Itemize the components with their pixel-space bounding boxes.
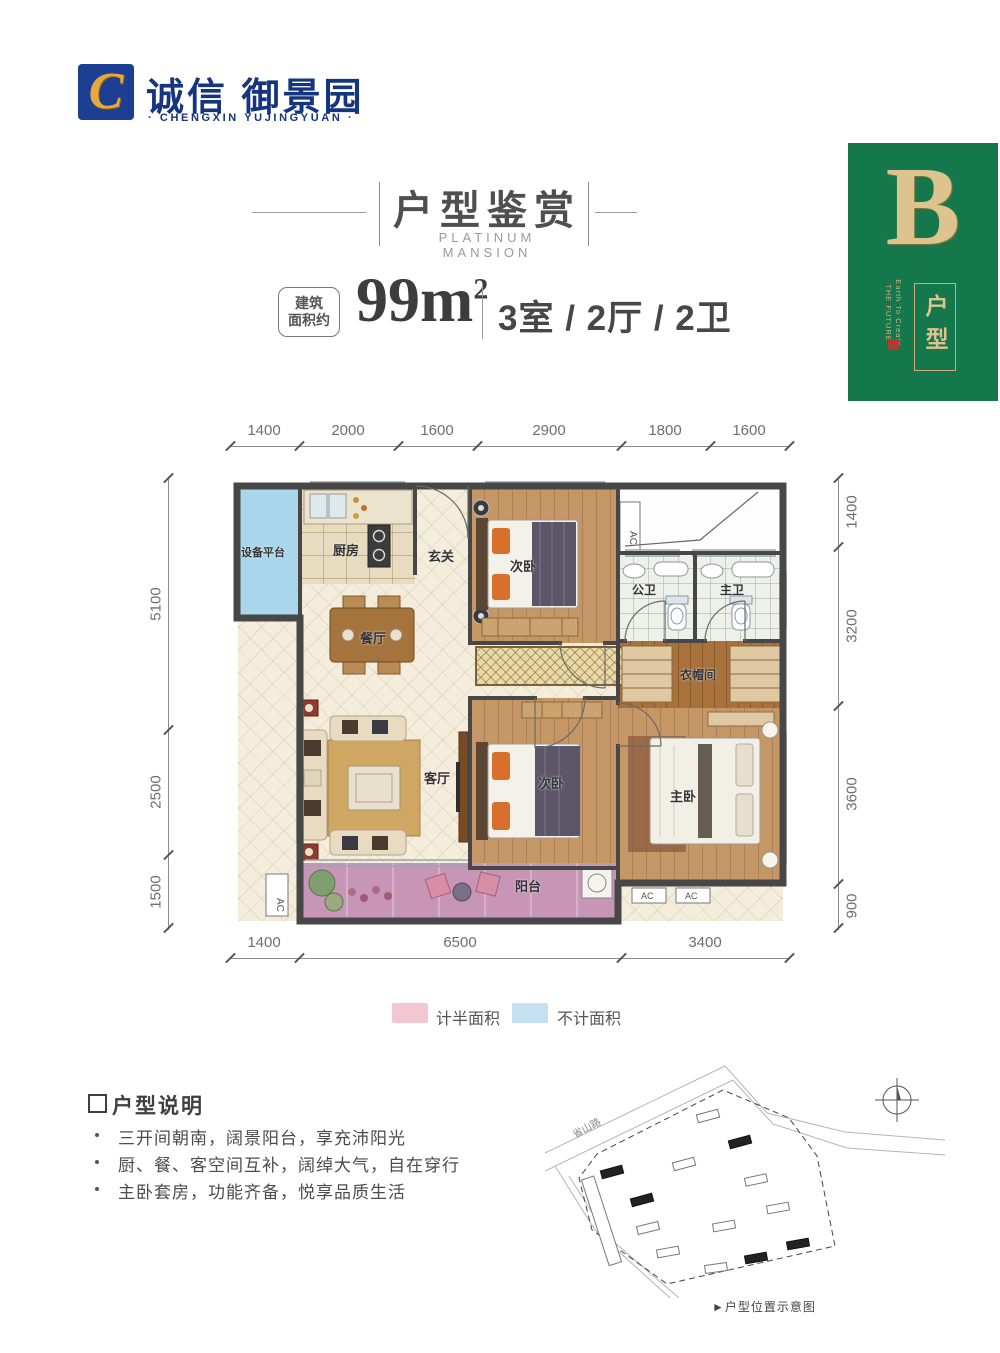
- logo-letter: C: [89, 66, 124, 118]
- unit-type-tag: 户型: [914, 283, 956, 371]
- dim-label: 1400: [844, 495, 861, 528]
- label-cloakroom: 衣帽间: [680, 666, 716, 683]
- label-bath-master: 主卫: [720, 581, 744, 598]
- badge-slogan: Earth To Create THE FUTURE: [883, 258, 903, 368]
- dim-label: 1400: [247, 934, 280, 951]
- brochure-page: C 诚信 御景园 · CHENGXIN YUJINGYUAN · 户型鉴赏 PL…: [0, 0, 1000, 1353]
- notes-title: 户型说明: [112, 1090, 204, 1120]
- sofa-icon: [300, 700, 420, 860]
- bullet-icon: [95, 1133, 99, 1137]
- area-divider: [482, 283, 483, 339]
- bullet-icon: [95, 1160, 99, 1164]
- badge-slogan-line2: THE FUTURE: [883, 258, 893, 368]
- label-bath-public: 公卫: [632, 581, 656, 598]
- title-bar-left: [379, 182, 380, 246]
- label-bedroom-mid: 次卧: [538, 773, 564, 792]
- notes-square-icon: [88, 1094, 107, 1113]
- legend-half-swatch: [392, 1003, 428, 1023]
- page-title: 户型鉴赏: [392, 178, 582, 236]
- dim-label: 2500: [148, 775, 165, 808]
- ac-label: AC: [641, 891, 654, 901]
- room-count: 3室 / 2厅 / 2卫: [498, 290, 732, 341]
- ac-unit-icon: AC AC: [632, 888, 710, 903]
- kitchen-counter-icon: [304, 490, 412, 524]
- road-label: 省山路: [570, 1115, 603, 1141]
- unit-letter: B: [848, 151, 998, 263]
- seal-icon: [888, 339, 899, 350]
- brand-logo-icon: C: [78, 64, 134, 120]
- area-size: 99m2: [356, 268, 488, 332]
- legend-excluded-swatch: [512, 1003, 548, 1023]
- label-equipment: 设备平台: [241, 544, 285, 560]
- label-living: 客厅: [424, 768, 450, 787]
- label-master: 主卧: [670, 786, 696, 805]
- area-tag-line2: 面积约: [288, 312, 330, 329]
- bullet-icon: [95, 1187, 99, 1191]
- label-kitchen: 厨房: [333, 540, 359, 559]
- dim-left: 5100 2500 1500: [148, 478, 182, 930]
- stove-icon: [368, 525, 390, 567]
- ac-label: AC: [685, 891, 698, 901]
- dim-label: 6500: [443, 934, 476, 951]
- ac-label: AC: [274, 898, 285, 912]
- note-item: 主卧套房，功能齐备，悦享品质生活: [118, 1178, 406, 1203]
- dim-label: 5100: [148, 587, 165, 620]
- bed-master-icon: [628, 712, 778, 868]
- dim-label: 1600: [420, 422, 453, 439]
- site-map: 省山路: [545, 1058, 945, 1298]
- area-size-sup: 2: [473, 273, 488, 306]
- page-subtitle: PLATINUM MANSION: [392, 230, 582, 260]
- bed-mid-icon: [476, 702, 602, 840]
- compass-icon: [875, 1078, 919, 1122]
- label-balcony: 阳台: [515, 876, 541, 895]
- dim-label: 1400: [247, 422, 280, 439]
- title-rule-left: [252, 212, 366, 213]
- tv-cabinet-icon: [456, 732, 468, 842]
- brand-name-en: · CHENGXIN YUJINGYUAN ·: [148, 112, 354, 124]
- site-map-caption: ►户型位置示意图: [712, 1298, 816, 1315]
- flue-line: [625, 492, 758, 546]
- dim-label: 1600: [732, 422, 765, 439]
- note-item: 三开间朝南，阔景阳台，享充沛阳光: [118, 1124, 406, 1149]
- title-bar-right: [588, 182, 589, 246]
- balcony-items-icon: [309, 868, 612, 911]
- dim-top: 1400 2000 1600 2900 1800 1600: [230, 418, 790, 452]
- unit-badge: B Earth To Create THE FUTURE 户型: [848, 143, 998, 401]
- note-item: 厨、餐、客空间互补，阔绰大气，自在穿行: [118, 1151, 460, 1176]
- dim-label: 3400: [688, 934, 721, 951]
- dim-label: 1800: [648, 422, 681, 439]
- dim-bottom: 1400 6500 3400: [230, 934, 790, 966]
- dim-label: 2000: [331, 422, 364, 439]
- label-dining: 餐厅: [360, 628, 386, 647]
- area-size-value: 99m: [356, 264, 473, 335]
- dim-label: 900: [844, 893, 861, 918]
- floor-plan: AC AC AC AC: [230, 478, 790, 930]
- ac-label: AC: [627, 531, 638, 545]
- legend-half-label: 计半面积: [436, 1005, 500, 1029]
- unit-type-text: 户型: [918, 294, 952, 360]
- label-foyer: 玄关: [428, 546, 454, 565]
- label-bedroom-top: 次卧: [510, 556, 536, 575]
- badge-slogan-line1: Earth To Create: [893, 258, 903, 368]
- legend-excluded-label: 不计面积: [557, 1005, 621, 1029]
- title-rule-right: [595, 212, 637, 213]
- dim-label: 3600: [844, 777, 861, 810]
- dim-right: 1400 3200 3600 900: [824, 478, 858, 930]
- dim-label: 3200: [844, 609, 861, 642]
- area-tag-line1: 建筑: [295, 295, 323, 312]
- site-buildings: [581, 1109, 809, 1273]
- plan-linework: AC AC AC AC: [230, 478, 790, 930]
- dim-label: 2900: [532, 422, 565, 439]
- area-tag: 建筑 面积约: [278, 287, 340, 337]
- dim-label: 1500: [148, 875, 165, 908]
- ac-unit-icon: AC: [266, 874, 288, 916]
